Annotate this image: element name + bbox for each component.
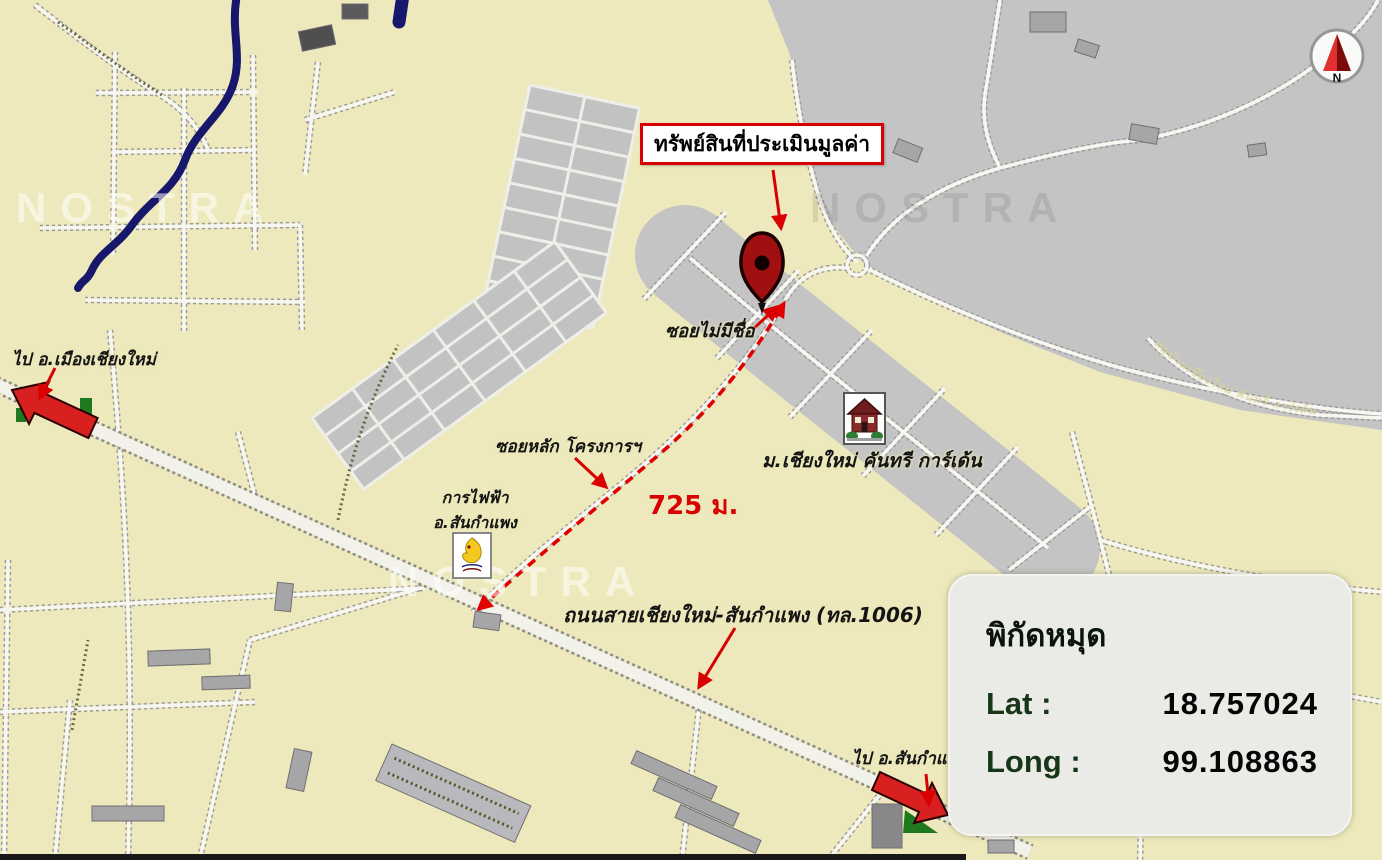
map-canvas[interactable]: หมู่บ้านเชียงใหม่ คันทรี การ์เด้น	[0, 0, 1382, 860]
illegible-road-text	[58, 22, 398, 730]
house-icon	[843, 392, 886, 445]
label-village-name: ม.เชียงใหม่ คันทรี การ์เด้น	[762, 446, 982, 476]
latitude-row: Lat : 18.757024	[986, 686, 1318, 722]
label-unnamed-soi: ซอยไม่มีชื่อ	[665, 316, 754, 345]
label-route-distance: 725 ม.	[648, 485, 738, 526]
longitude-value: 99.108863	[1162, 744, 1318, 780]
electricity-office-line2: อ.สันกำแพง	[433, 513, 517, 532]
latitude-label: Lat :	[986, 686, 1051, 722]
electricity-office-icon	[452, 532, 492, 579]
direction-arrow-northwest	[12, 382, 98, 438]
label-highway-name: ถนนสายเชียงใหม่-สันกำแพง (ทล.1006)	[563, 599, 923, 631]
latitude-value: 18.757024	[1162, 686, 1318, 722]
coordinates-title: พิกัดหมุด	[986, 610, 1318, 660]
longitude-row: Long : 99.108863	[986, 744, 1318, 780]
electricity-office-line1: การไฟฟ้า	[442, 488, 509, 507]
compass-icon: N	[1306, 26, 1368, 88]
label-to-mueang-chiang-mai: ไป อ.เมืองเชียงใหม่	[12, 346, 156, 373]
longitude-label: Long :	[986, 744, 1081, 780]
property-callout-box: ทรัพย์สินที่ประเมินมูลค่า	[640, 123, 884, 165]
label-project-main-soi: ซอยหลัก โครงการฯ	[495, 433, 641, 460]
compass-north-letter: N	[1333, 71, 1342, 85]
map-bottom-border	[0, 854, 966, 860]
label-electricity-office: การไฟฟ้า อ.สันกำแพง	[425, 486, 525, 536]
river	[78, 0, 403, 288]
coordinates-panel: พิกัดหมุด Lat : 18.757024 Long : 99.1088…	[948, 574, 1352, 836]
